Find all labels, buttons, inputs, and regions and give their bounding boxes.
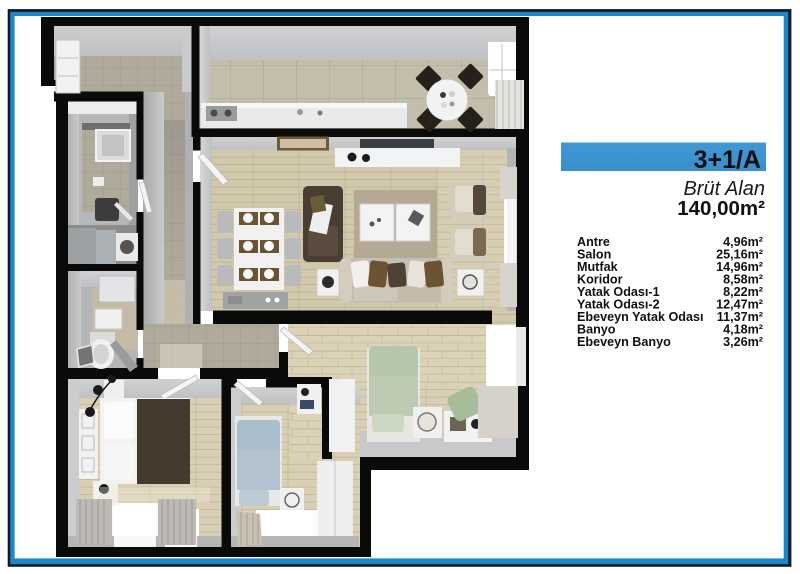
svg-text:140,00m²: 140,00m² [677,197,765,220]
svg-text:Ebeveyn Banyo: Ebeveyn Banyo [577,335,671,349]
svg-text:3+1/A: 3+1/A [694,146,761,174]
svg-text:3,26m²: 3,26m² [723,335,763,349]
